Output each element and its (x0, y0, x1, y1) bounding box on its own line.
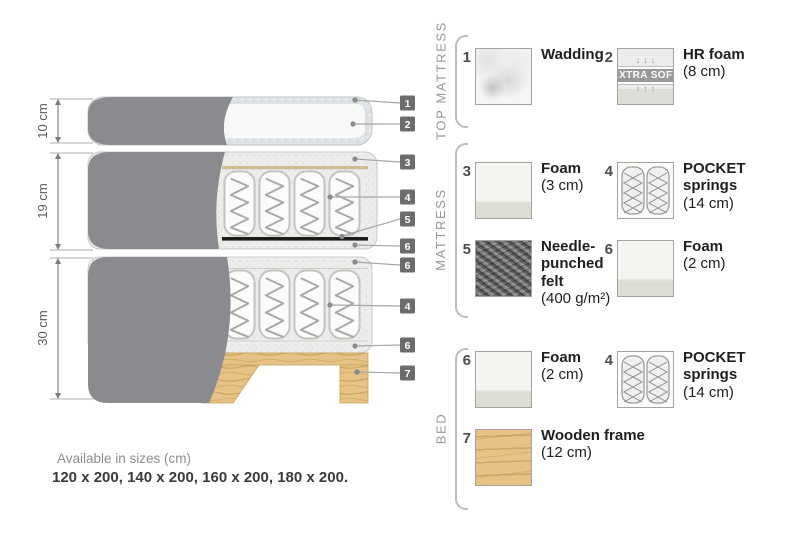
callout-chips: 1 2 3 4 5 6 6 4 6 7 (400, 96, 415, 381)
hr-foam-swatch: ↓↓↓ EXTRA SOFT ↑↑↑ (617, 48, 674, 105)
legend-number: 6 (597, 241, 613, 258)
callout-chip-7: 7 (400, 366, 415, 381)
svg-text:4: 4 (405, 192, 411, 204)
svg-text:6: 6 (405, 340, 411, 352)
legend-label: Wooden frame (541, 427, 701, 444)
callout-chip-6c: 6 (400, 338, 415, 353)
legend-number: 6 (455, 352, 471, 369)
bed-construction-diagram: 10 cm 19 cm 30 cm (0, 0, 800, 533)
wood-swatch (475, 429, 532, 486)
dimension-30cm: 30 cm (35, 258, 93, 399)
pocket-springs-swatch (617, 351, 674, 408)
wooden-rail (220, 353, 368, 365)
legend-label: POCKET springs (683, 349, 778, 384)
svg-text:1: 1 (405, 98, 411, 110)
legend-size: (2 cm) (683, 255, 778, 272)
wadding-swatch (475, 48, 532, 105)
foam-swatch (475, 162, 532, 219)
callout-chip-4: 4 (400, 190, 415, 205)
legend-size: (14 cm) (683, 195, 778, 212)
fabric-cover (88, 257, 231, 403)
dimension-19cm: 19 cm (35, 153, 93, 250)
legend-label: Foam (683, 238, 778, 255)
available-sizes-values: 120 x 200, 140 x 200, 160 x 200, 180 x 2… (52, 469, 348, 486)
section-label-top-mattress: TOP MATTRESS (434, 16, 449, 146)
felt-layer (222, 237, 368, 241)
section-label-mattress: MATTRESS (433, 142, 448, 317)
section-label-bed: BED (434, 349, 449, 509)
legend-number: 4 (597, 352, 613, 369)
callout-chip-2: 2 (400, 117, 415, 132)
callout-chip-5: 5 (400, 212, 415, 227)
legend-size: (14 cm) (683, 384, 778, 401)
section-bracket-bed (455, 348, 468, 510)
legend-number: 5 (455, 241, 471, 258)
pocket-springs-swatch (617, 162, 674, 219)
svg-text:6: 6 (405, 241, 411, 253)
legend-number: 4 (597, 163, 613, 180)
legend-number: 2 (597, 49, 613, 66)
dimension-label: 10 cm (35, 103, 50, 138)
svg-text:7: 7 (405, 368, 411, 380)
available-sizes-title: Available in sizes (cm) (57, 451, 191, 466)
fabric-cover (88, 97, 233, 145)
top-mattress-cross-section (88, 97, 372, 145)
legend-size: (400 g/m²) (541, 290, 611, 307)
legend-number: 1 (455, 49, 471, 66)
svg-text:3: 3 (405, 157, 411, 169)
fabric-cover (88, 152, 225, 249)
svg-text:2: 2 (405, 119, 411, 131)
felt-swatch (475, 240, 532, 297)
bed-cross-section (88, 257, 372, 403)
dimension-label: 30 cm (35, 310, 50, 345)
mattress-cross-section (88, 152, 377, 249)
svg-text:6: 6 (405, 260, 411, 272)
dimension-label: 19 cm (35, 183, 50, 218)
legend-number: 7 (455, 430, 471, 447)
callout-chip-3: 3 (400, 155, 415, 170)
callout-chip-6b: 6 (400, 258, 415, 273)
legend-label: POCKET springs (683, 160, 778, 195)
compress-arrows-down: ↓↓↓ (633, 56, 659, 66)
extra-soft-badge: EXTRA SOFT (617, 67, 674, 84)
svg-text:5: 5 (405, 214, 411, 226)
callout-chip-1: 1 (400, 96, 415, 111)
legend-number: 3 (455, 163, 471, 180)
legend-size: (12 cm) (541, 444, 701, 461)
callout-chip-6: 6 (400, 239, 415, 254)
dimension-10cm: 10 cm (35, 99, 93, 143)
svg-text:4: 4 (405, 301, 411, 313)
foam-swatch (475, 351, 532, 408)
foam-swatch (617, 240, 674, 297)
compress-arrows-up: ↑↑↑ (633, 85, 659, 95)
wooden-leg-right (340, 365, 368, 403)
legend-size: (8 cm) (683, 63, 778, 80)
legend-label: HR foam (683, 46, 778, 63)
callout-chip-4b: 4 (400, 299, 415, 314)
